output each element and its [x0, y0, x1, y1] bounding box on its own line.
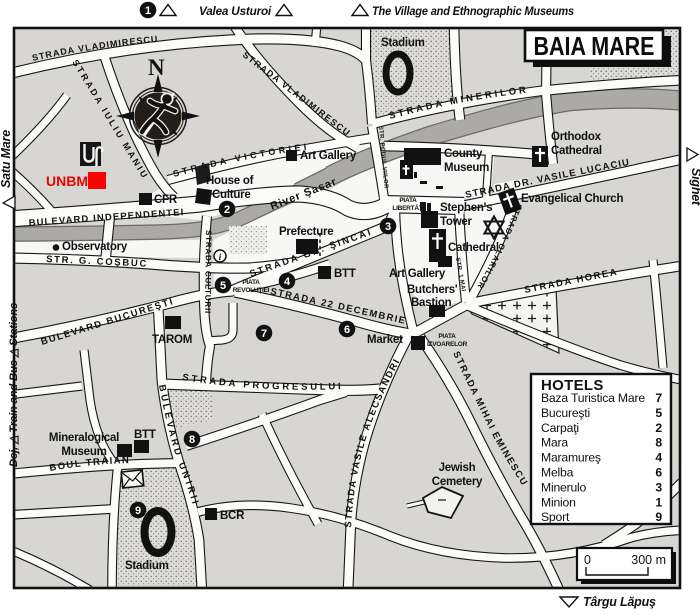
svg-text:Mara: Mara — [541, 436, 568, 450]
svg-text:Museum: Museum — [61, 446, 106, 458]
svg-text:Melba: Melba — [541, 466, 574, 480]
svg-text:Culture: Culture — [212, 189, 251, 201]
svg-text:Stadium: Stadium — [125, 560, 169, 572]
svg-text:Butchers': Butchers' — [407, 284, 458, 296]
svg-text:Minion: Minion — [541, 495, 576, 509]
svg-text:Orthodox: Orthodox — [551, 131, 602, 143]
svg-text:4: 4 — [655, 451, 662, 465]
svg-text:Observatory: Observatory — [62, 241, 128, 253]
svg-text:300 m: 300 m — [631, 553, 666, 567]
svg-text:Valea Usturoi: Valea Usturoi — [199, 4, 272, 18]
svg-text:1: 1 — [145, 5, 151, 17]
svg-text:Prefecture: Prefecture — [279, 226, 333, 238]
svg-text:2: 2 — [655, 421, 662, 435]
svg-text:The Village and Ethnographic M: The Village and Ethnographic Museums — [372, 4, 574, 18]
svg-text:Bastion: Bastion — [411, 297, 452, 309]
svg-text:Dej, △ Train and Bus △ Station: Dej, △ Train and Bus △ Stations — [8, 303, 20, 467]
svg-text:9: 9 — [135, 505, 141, 517]
svg-text:House of: House of — [206, 175, 254, 187]
svg-text:Minerulo: Minerulo — [541, 480, 587, 494]
svg-text:3: 3 — [655, 480, 662, 494]
svg-text:5: 5 — [655, 406, 662, 420]
svg-text:Bucureşti: Bucureşti — [541, 406, 590, 420]
svg-text:BCR: BCR — [220, 510, 245, 522]
svg-text:BTT: BTT — [134, 429, 156, 441]
svg-text:i: i — [219, 253, 222, 263]
svg-text:CFR: CFR — [154, 194, 178, 206]
svg-text:3: 3 — [385, 221, 391, 233]
svg-text:Cathedral: Cathedral — [448, 242, 499, 254]
svg-text:TAROM: TAROM — [152, 334, 192, 346]
svg-text:Carpaţi: Carpaţi — [541, 421, 579, 435]
svg-text:8: 8 — [189, 434, 195, 446]
svg-text:REVOLUŢIEI: REVOLUŢIEI — [233, 287, 270, 294]
svg-text:2: 2 — [224, 204, 230, 216]
svg-text:Târgu Lăpuş: Târgu Lăpuş — [583, 595, 656, 609]
svg-text:PIATA: PIATA — [438, 333, 456, 340]
svg-text:Baza Turistica Mare: Baza Turistica Mare — [541, 391, 645, 405]
svg-text:7: 7 — [261, 328, 267, 340]
svg-text:Tower: Tower — [440, 216, 473, 228]
svg-text:STRADA CULTURII: STRADA CULTURII — [203, 230, 213, 314]
svg-text:Satu Mare: Satu Mare — [0, 130, 13, 188]
svg-text:Museum: Museum — [444, 162, 489, 174]
svg-text:5: 5 — [220, 280, 226, 292]
svg-text:9: 9 — [655, 510, 662, 524]
svg-text:Stadium: Stadium — [381, 37, 425, 49]
svg-text:6: 6 — [655, 466, 662, 480]
svg-text:1: 1 — [655, 495, 662, 509]
svg-text:0: 0 — [584, 553, 591, 567]
svg-text:PIATA: PIATA — [399, 197, 417, 204]
svg-text:N: N — [148, 55, 165, 80]
svg-text:PIATA: PIATA — [242, 279, 260, 286]
svg-text:Cathedral: Cathedral — [551, 145, 602, 157]
svg-text:BAIA MARE: BAIA MARE — [534, 31, 655, 61]
svg-text:Sport: Sport — [541, 510, 570, 524]
svg-text:4: 4 — [284, 276, 291, 288]
svg-text:Maramureş: Maramureş — [541, 451, 601, 465]
svg-text:Sighet: Sighet — [689, 168, 700, 206]
svg-text:Art Gallery: Art Gallery — [300, 150, 357, 162]
svg-text:Stephen's: Stephen's — [440, 202, 492, 214]
svg-text:BTT: BTT — [334, 268, 356, 280]
svg-text:6: 6 — [344, 324, 350, 336]
svg-text:LIBERTĂŢII: LIBERTĂŢII — [392, 203, 426, 212]
svg-text:7: 7 — [655, 391, 662, 405]
svg-text:County: County — [444, 148, 483, 160]
svg-text:Cemetery: Cemetery — [432, 476, 483, 488]
svg-text:IZVOARELOR: IZVOARELOR — [427, 341, 468, 348]
svg-text:Jewish: Jewish — [439, 462, 476, 474]
svg-text:UNBM: UNBM — [46, 173, 88, 189]
svg-text:Mineralogical: Mineralogical — [49, 432, 119, 444]
svg-text:Market: Market — [367, 334, 403, 346]
svg-text:Evangelical Church: Evangelical Church — [521, 193, 623, 205]
svg-text:Art Gallery: Art Gallery — [389, 268, 446, 280]
svg-text:8: 8 — [655, 436, 662, 450]
